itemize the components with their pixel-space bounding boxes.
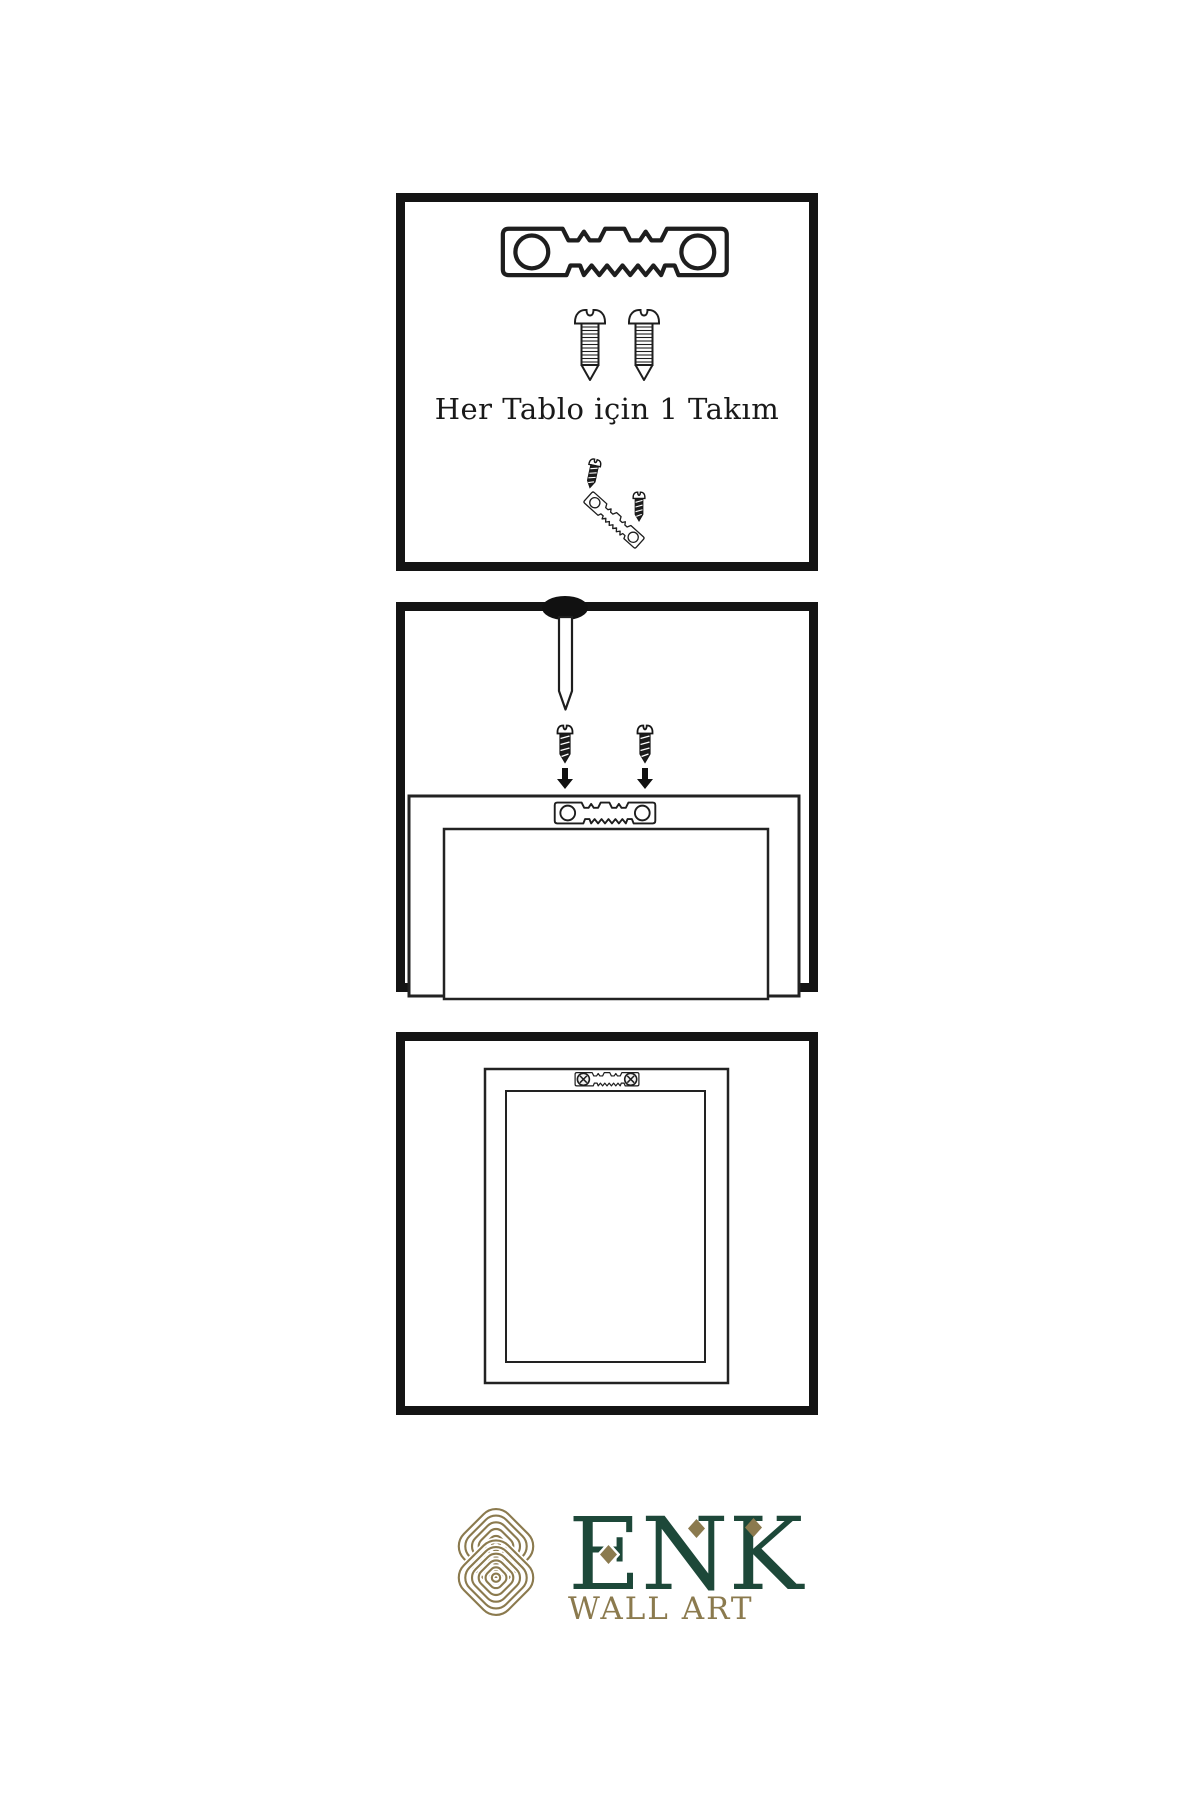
page: Her Tablo için 1 Takım xyxy=(0,0,1200,1800)
mounted-frame-panel xyxy=(396,1032,818,1415)
diamond-accent-icon xyxy=(688,1519,705,1538)
dark-screw-icon xyxy=(584,458,601,489)
brand-tagline: WALL ART xyxy=(568,1592,754,1626)
dark-screw-icon xyxy=(558,726,573,763)
screw-icon xyxy=(575,310,605,380)
screw-icon xyxy=(629,310,659,380)
diamond-accent-icon xyxy=(597,1545,620,1564)
kit-caption: Her Tablo için 1 Takım xyxy=(405,394,809,424)
diamond-accent-icon xyxy=(745,1518,762,1537)
hardware-kit-panel: Her Tablo için 1 Takım xyxy=(396,193,818,571)
wall-mount-panel xyxy=(396,602,818,992)
brand-logo: ENK WALL ART xyxy=(434,1496,786,1660)
phillips-screw-icon xyxy=(625,1073,637,1085)
dark-screw-icon xyxy=(633,492,645,521)
down-arrow-icon xyxy=(637,768,653,789)
interlaced-knot-icon xyxy=(434,1500,558,1624)
nail-icon xyxy=(542,596,588,710)
wall-mount-illustration xyxy=(405,611,809,983)
hardware-kit-illustration xyxy=(405,202,809,562)
down-arrow-icon xyxy=(557,768,573,789)
dark-screw-icon xyxy=(638,726,653,763)
sawtooth-hanger-icon xyxy=(503,229,727,275)
mounted-frame-illustration xyxy=(405,1041,809,1406)
frame-back-icon xyxy=(409,796,799,999)
sawtooth-hanger-icon xyxy=(555,803,656,824)
frame-back-icon xyxy=(485,1069,728,1383)
phillips-screw-icon xyxy=(577,1073,589,1085)
